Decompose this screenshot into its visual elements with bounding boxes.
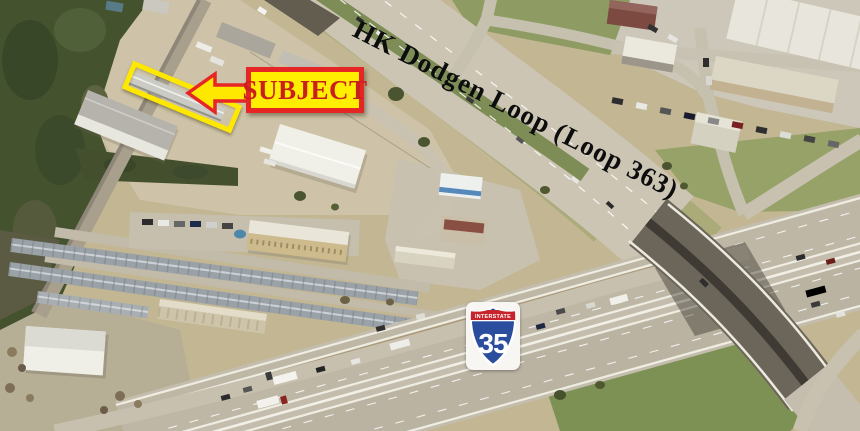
- aerial-screenshot: SUBJECT HK Dodgen Loop (Loop 363) INTERS…: [0, 0, 860, 431]
- interstate-shield-band-text: INTERSTATE: [475, 314, 511, 320]
- interstate-35-shield: INTERSTATE 35: [466, 302, 520, 370]
- interstate-shield-number: 35: [478, 328, 508, 359]
- interstate-shield-icon: INTERSTATE 35: [469, 305, 517, 367]
- subject-label-box: SUBJECT: [246, 67, 364, 113]
- swimming-pool: [234, 230, 246, 239]
- subject-label: SUBJECT: [242, 77, 367, 104]
